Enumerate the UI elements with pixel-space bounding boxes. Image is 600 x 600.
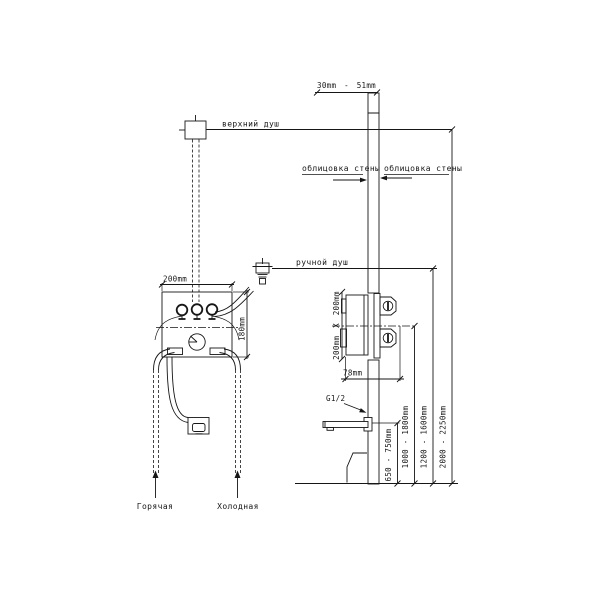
dim-mixer-height: 180mm (233, 289, 250, 360)
cold-label: Холодная (217, 502, 259, 511)
dim-cladding-text: 30mm - 51mm (317, 81, 376, 90)
thread-label: G1/2 (326, 394, 345, 403)
dim-mixer-width: 200mm (159, 275, 235, 292)
hand-shower-holder-symbol (253, 258, 273, 284)
hot-arrow (153, 471, 159, 499)
dim-spout-height: 650 - 750mm (372, 420, 401, 487)
mixer-knob-center (192, 304, 203, 319)
wall-cladding-left-label: облицовка стены (302, 163, 380, 173)
wall-cladding-right-label: облицовка стены (384, 163, 462, 173)
step-profile (347, 453, 367, 483)
cold-supply-pipe (220, 349, 241, 473)
shower-riser-pipe (193, 140, 200, 303)
wall-cladding-callout-left: облицовка стены (302, 163, 380, 182)
dim-valve-depth-text: 78mm (343, 369, 362, 378)
valve-section (332, 294, 415, 359)
spout-section (323, 418, 372, 432)
overhead-shower-symbol (179, 115, 206, 139)
overhead-shower-label: верхний душ (222, 120, 279, 129)
dim-valve-height-text: 1000 - 1800mm (401, 406, 410, 469)
dim-valve-depth: 78mm (341, 326, 404, 382)
valve-knob-top (380, 297, 396, 315)
hot-supply-pipe (154, 349, 175, 473)
hot-label: Горячая (137, 502, 174, 511)
installation-diagram-page: верхний душ (0, 0, 600, 600)
thread-callout: G1/2 (326, 394, 367, 413)
dim-recess-size: 200mm X 200mm (332, 289, 345, 362)
hand-shower-label: ручной душ (296, 258, 348, 267)
spout-outlet-symbol (188, 418, 209, 435)
section-view: 30mm - 51mm облицовка стены облицовка ст… (295, 81, 462, 487)
dim-spout-height-text: 650 - 750mm (384, 428, 393, 481)
dim-valve-height: 1000 - 1800mm (401, 323, 418, 487)
wall-cladding-callout-right: облицовка стены (380, 163, 462, 180)
dim-mixer-width-text: 200mm (163, 275, 187, 284)
dim-hand-shower-height-text: 1200 - 1600mm (420, 406, 429, 469)
valve-knob-bottom (380, 329, 396, 347)
cold-arrow (235, 471, 241, 499)
installation-diagram: верхний душ (0, 0, 600, 600)
dim-mixer-height-text: 180mm (238, 317, 247, 341)
spout-feed-pipe (167, 357, 188, 423)
dim-hand-shower-height: 1200 - 1600mm (420, 266, 437, 487)
concealed-mixer-box (155, 292, 239, 357)
dim-overhead-height-text: 2000 - 2250mm (439, 406, 448, 469)
temperature-dial (189, 334, 205, 350)
dim-recess-text: 200mm X 200mm (332, 291, 341, 360)
dim-overhead-height: 2000 - 2250mm (439, 127, 456, 487)
